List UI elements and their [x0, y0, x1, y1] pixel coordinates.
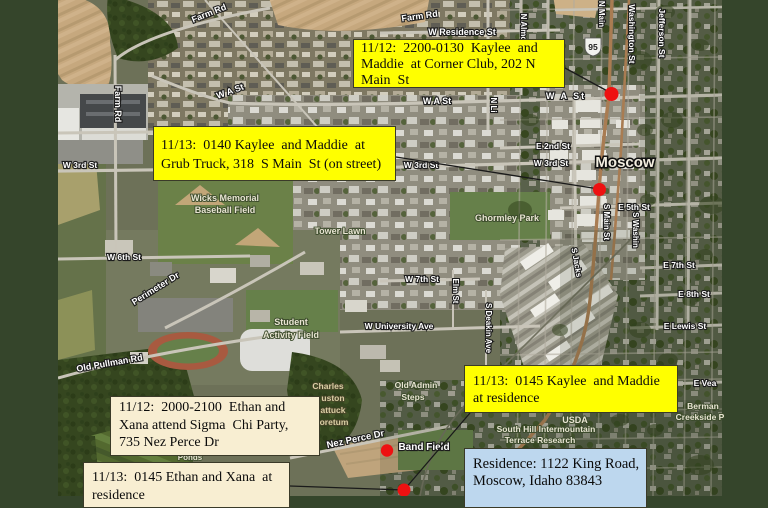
- svg-text:Baseball Field: Baseball Field: [195, 205, 256, 215]
- svg-text:S Washin: S Washin: [631, 212, 640, 248]
- svg-text:W Residence St: W Residence St: [428, 27, 496, 37]
- svg-text:95: 95: [588, 42, 598, 52]
- svg-text:E Vea: E Vea: [694, 378, 717, 388]
- svg-text:N Main: N Main: [597, 1, 606, 27]
- svg-text:Band Field: Band Field: [398, 442, 449, 453]
- svg-text:Old Admin: Old Admin: [395, 380, 438, 390]
- svg-text:W 3rd St: W 3rd St: [63, 160, 98, 170]
- svg-text:Farm Rd: Farm Rd: [113, 86, 123, 123]
- svg-text:Washington St: Washington St: [627, 4, 637, 63]
- svg-text:E 8th St: E 8th St: [678, 289, 710, 299]
- svg-text:W 6th St: W 6th St: [107, 252, 141, 262]
- svg-text:Berman: Berman: [687, 401, 719, 411]
- svg-text:W 3rd St: W 3rd St: [534, 158, 569, 168]
- svg-text:W A St: W A St: [423, 96, 451, 106]
- svg-text:oretum: oretum: [320, 417, 349, 427]
- svg-text:Activity Field: Activity Field: [263, 330, 319, 340]
- svg-text:W A St: W A St: [546, 91, 586, 101]
- svg-text:E 5th St: E 5th St: [618, 202, 650, 212]
- svg-text:Jefferson St: Jefferson St: [657, 8, 667, 57]
- svg-text:Charles: Charles: [312, 381, 343, 391]
- svg-text:S Deakin Ave: S Deakin Ave: [484, 303, 493, 354]
- svg-text:Steps: Steps: [401, 392, 424, 402]
- svg-text:Wicks Memorial: Wicks Memorial: [191, 193, 259, 203]
- svg-text:uston: uston: [321, 393, 344, 403]
- svg-text:W University Ave: W University Ave: [365, 321, 434, 331]
- svg-text:Tower Lawn: Tower Lawn: [314, 226, 365, 236]
- svg-text:Student: Student: [274, 317, 308, 327]
- svg-text:South Hill Intermountain: South Hill Intermountain: [497, 424, 596, 434]
- svg-text:E Lewis St: E Lewis St: [664, 321, 707, 331]
- svg-text:Ghormley Park: Ghormley Park: [475, 213, 540, 223]
- svg-text:Terrace Research: Terrace Research: [505, 435, 576, 445]
- svg-text:S Main St: S Main St: [602, 204, 611, 240]
- svg-text:Elm St: Elm St: [451, 279, 460, 304]
- svg-text:E 2nd St: E 2nd St: [536, 141, 570, 151]
- svg-text:N Li: N Li: [489, 97, 498, 112]
- svg-text:E 7th St: E 7th St: [663, 260, 695, 270]
- svg-text:W 7th St: W 7th St: [405, 274, 439, 284]
- svg-text:Creekside P: Creekside P: [676, 412, 725, 422]
- svg-text:attuck: attuck: [320, 405, 345, 415]
- svg-text:Moscow: Moscow: [595, 154, 655, 171]
